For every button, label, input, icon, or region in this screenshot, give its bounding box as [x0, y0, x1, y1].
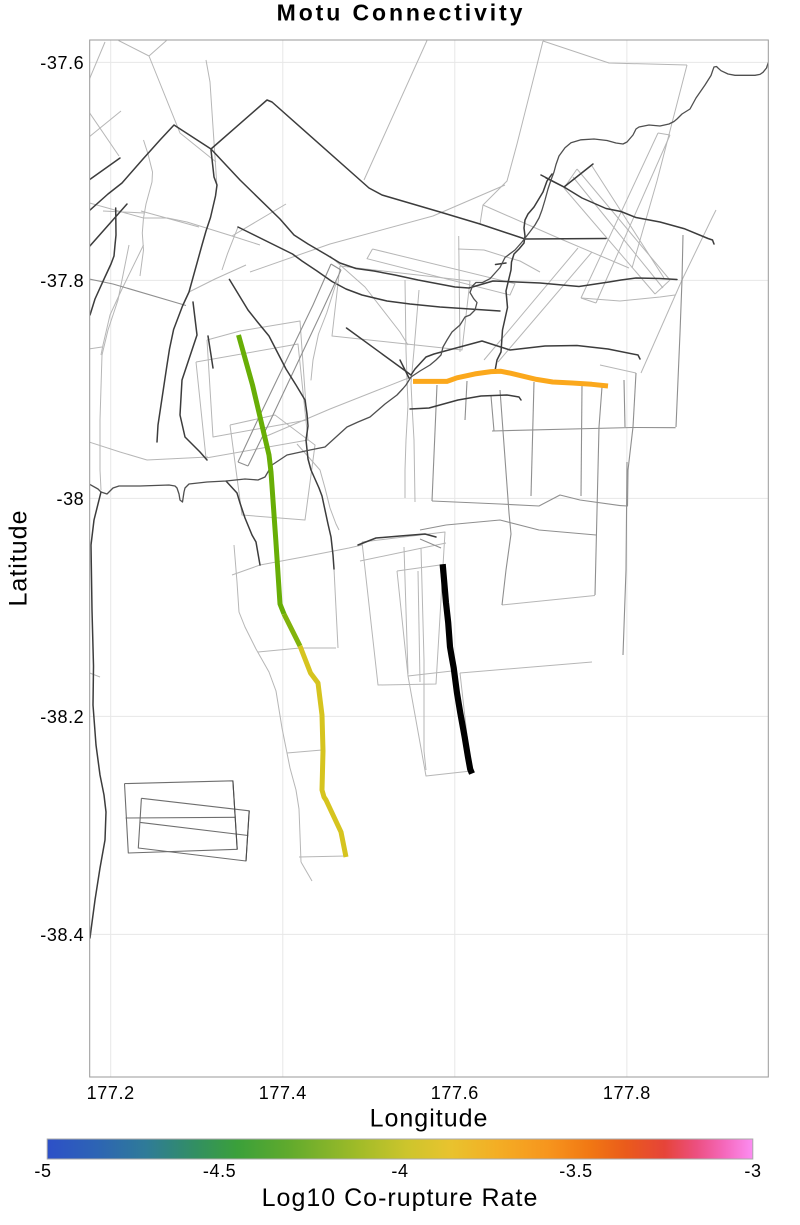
- svg-text:-37.6: -37.6: [40, 53, 84, 73]
- svg-text:-3.5: -3.5: [559, 1161, 592, 1181]
- svg-text:-5: -5: [34, 1161, 51, 1181]
- svg-text:Log10 Co-rupture Rate: Log10 Co-rupture Rate: [262, 1184, 539, 1212]
- svg-text:-38: -38: [56, 489, 84, 509]
- svg-text:-38.2: -38.2: [40, 707, 84, 727]
- svg-text:-37.8: -37.8: [40, 271, 84, 291]
- svg-text:177.2: 177.2: [87, 1083, 135, 1103]
- svg-text:177.8: 177.8: [603, 1083, 651, 1103]
- svg-text:Latitude: Latitude: [5, 510, 33, 607]
- svg-text:-38.4: -38.4: [40, 925, 84, 945]
- svg-text:-4.5: -4.5: [203, 1161, 236, 1181]
- svg-text:-4: -4: [391, 1161, 408, 1181]
- svg-text:177.4: 177.4: [259, 1083, 307, 1103]
- svg-text:-3: -3: [744, 1161, 761, 1181]
- svg-text:177.6: 177.6: [431, 1083, 479, 1103]
- svg-text:Motu Connectivity: Motu Connectivity: [277, 0, 526, 26]
- svg-text:Longitude: Longitude: [370, 1105, 489, 1133]
